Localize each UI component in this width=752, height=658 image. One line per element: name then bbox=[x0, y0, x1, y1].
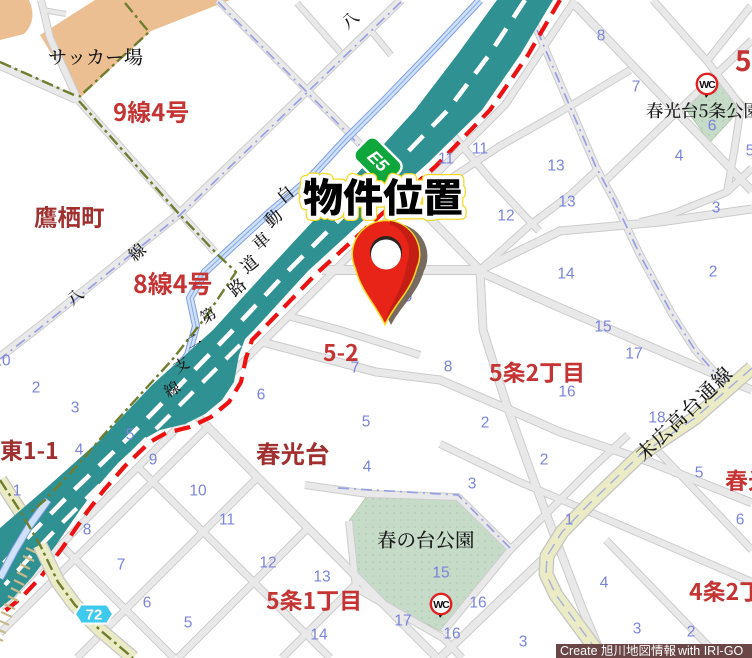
svg-text:13: 13 bbox=[547, 158, 564, 175]
svg-text:5: 5 bbox=[126, 427, 135, 444]
svg-text:with IRI-GO: with IRI-GO bbox=[677, 644, 744, 658]
svg-text:13: 13 bbox=[558, 194, 575, 211]
svg-text:12: 12 bbox=[259, 555, 276, 572]
svg-text:7: 7 bbox=[351, 360, 360, 377]
svg-text:10: 10 bbox=[189, 483, 207, 500]
svg-text:16: 16 bbox=[558, 384, 575, 401]
svg-text:14: 14 bbox=[310, 627, 328, 644]
svg-text:17: 17 bbox=[625, 346, 642, 363]
svg-text:5: 5 bbox=[184, 615, 193, 632]
svg-text:6: 6 bbox=[708, 118, 717, 135]
svg-text:2: 2 bbox=[709, 264, 718, 281]
svg-text:8: 8 bbox=[83, 522, 92, 539]
svg-text:10: 10 bbox=[0, 353, 11, 370]
svg-text:3: 3 bbox=[519, 634, 528, 651]
svg-text:13: 13 bbox=[313, 569, 330, 586]
svg-text:6: 6 bbox=[736, 512, 745, 529]
svg-text:3: 3 bbox=[71, 400, 80, 417]
svg-text:WC: WC bbox=[433, 599, 450, 611]
svg-text:2: 2 bbox=[687, 624, 696, 641]
svg-text:4: 4 bbox=[675, 148, 684, 165]
svg-text:8: 8 bbox=[597, 28, 606, 45]
svg-text:4: 4 bbox=[363, 459, 372, 476]
svg-text:7: 7 bbox=[632, 79, 641, 96]
svg-text:2: 2 bbox=[540, 452, 549, 469]
svg-text:16: 16 bbox=[443, 626, 460, 643]
svg-text:3: 3 bbox=[633, 621, 642, 638]
svg-text:18: 18 bbox=[648, 410, 665, 427]
svg-text:Create: Create bbox=[560, 644, 598, 658]
svg-text:15: 15 bbox=[432, 565, 449, 582]
svg-text:2: 2 bbox=[481, 415, 490, 432]
svg-text:5: 5 bbox=[362, 414, 371, 431]
svg-text:17: 17 bbox=[394, 613, 411, 630]
svg-text:5: 5 bbox=[746, 143, 752, 160]
svg-text:11: 11 bbox=[219, 512, 235, 529]
svg-text:11: 11 bbox=[438, 151, 454, 168]
svg-text:3: 3 bbox=[712, 200, 721, 217]
svg-text:16: 16 bbox=[469, 595, 486, 612]
svg-text:WC: WC bbox=[699, 79, 716, 91]
svg-text:6: 6 bbox=[143, 595, 152, 612]
svg-text:9: 9 bbox=[149, 452, 158, 469]
svg-text:5: 5 bbox=[695, 465, 704, 482]
svg-text:3: 3 bbox=[468, 476, 477, 493]
svg-text:4: 4 bbox=[600, 575, 609, 592]
svg-text:14: 14 bbox=[557, 266, 575, 283]
svg-text:15: 15 bbox=[594, 319, 611, 336]
svg-text:7: 7 bbox=[117, 557, 126, 574]
svg-text:2: 2 bbox=[32, 380, 41, 397]
svg-text:4: 4 bbox=[75, 442, 84, 459]
svg-text:72: 72 bbox=[86, 607, 103, 624]
svg-text:6: 6 bbox=[257, 387, 266, 404]
svg-text:12: 12 bbox=[497, 208, 514, 225]
svg-text:1: 1 bbox=[565, 512, 574, 529]
svg-text:8: 8 bbox=[444, 359, 453, 376]
svg-text:1: 1 bbox=[13, 483, 22, 500]
svg-text:11: 11 bbox=[472, 141, 488, 158]
